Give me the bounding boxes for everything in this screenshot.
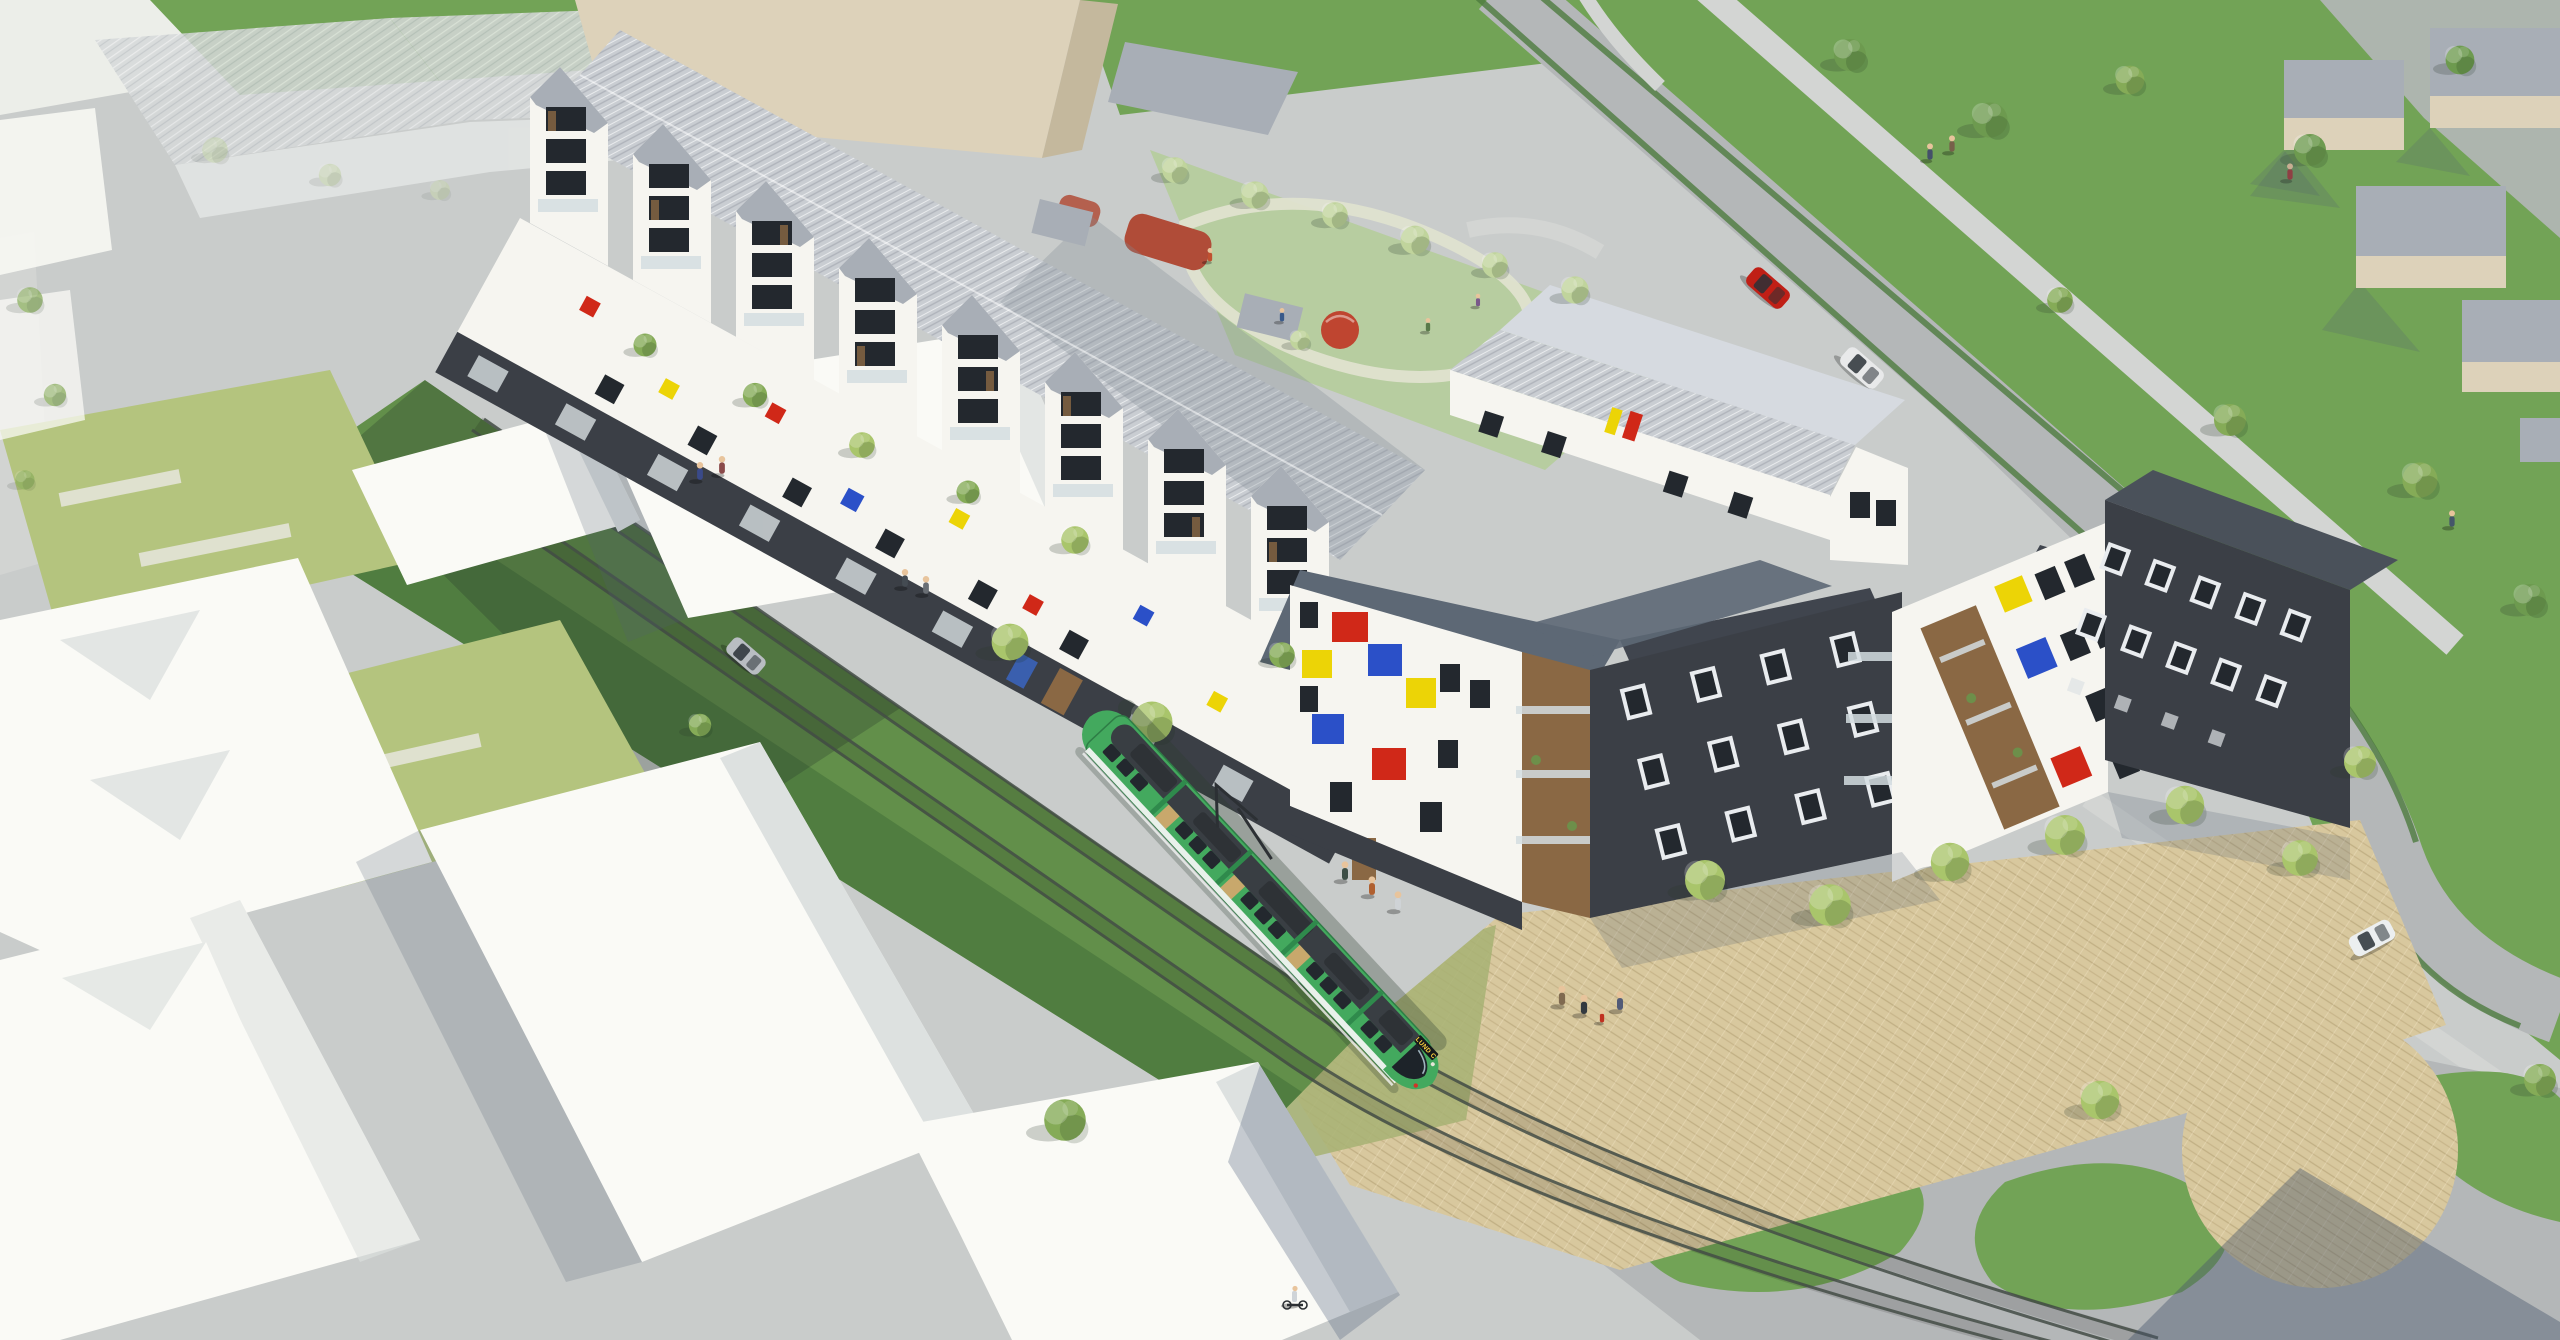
scene: LUND C — [0, 0, 2560, 1340]
wood-recess — [1516, 652, 1596, 918]
